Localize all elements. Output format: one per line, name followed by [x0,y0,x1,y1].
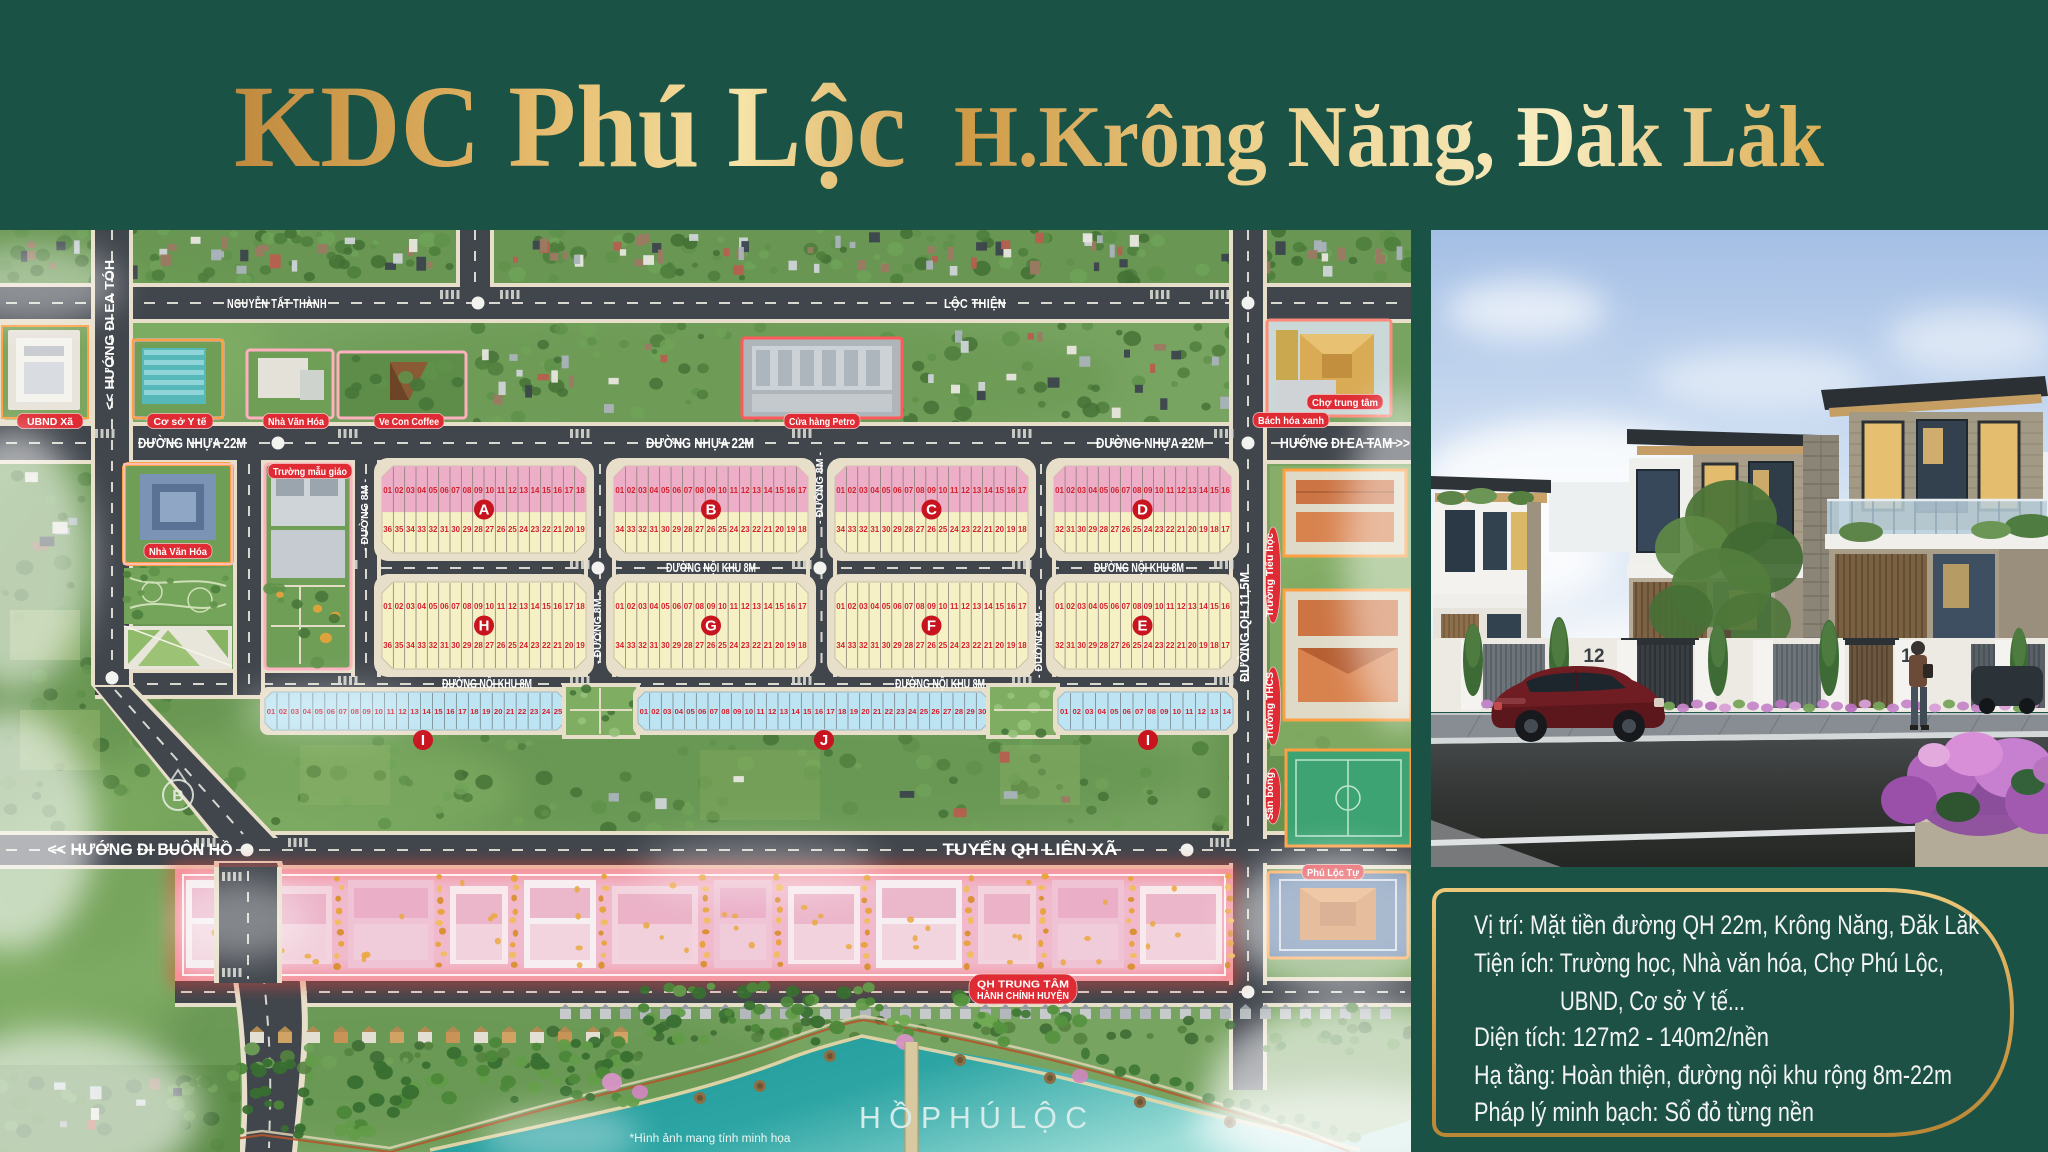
svg-text:LỘC THIỆN: LỘC THIỆN [944,296,1006,311]
svg-text:01: 01 [836,486,845,495]
svg-text:19: 19 [482,707,490,716]
svg-text:13: 13 [780,707,788,716]
svg-text:03: 03 [406,602,415,611]
svg-text:20: 20 [494,707,502,716]
svg-text:14: 14 [764,486,773,495]
svg-text:24: 24 [519,525,528,534]
svg-text:06: 06 [440,602,449,611]
svg-text:27: 27 [695,641,704,650]
svg-text:02: 02 [395,602,404,611]
svg-text:02: 02 [1066,602,1075,611]
svg-text:25: 25 [938,525,947,534]
svg-text:B: B [172,788,184,805]
svg-text:15: 15 [1210,602,1219,611]
svg-text:QH TRUNG TÂM: QH TRUNG TÂM [977,978,1069,991]
svg-text:29: 29 [966,707,974,716]
svg-text:Ve Con Coffee: Ve Con Coffee [379,416,439,428]
svg-text:16: 16 [553,486,562,495]
svg-text:07: 07 [904,486,913,495]
svg-text:22: 22 [973,641,982,650]
svg-text:23: 23 [961,525,970,534]
svg-text:32: 32 [638,525,647,534]
svg-text:33: 33 [848,525,857,534]
svg-text:08: 08 [695,602,704,611]
svg-text:KDC Phú Lộc: KDC Phú Lộc [234,61,906,192]
svg-text:HÀNH CHÍNH HUYỆN: HÀNH CHÍNH HUYỆN [977,989,1069,1002]
svg-text:22: 22 [885,707,893,716]
svg-text:Bách hóa xanh: Bách hóa xanh [1258,415,1324,427]
svg-text:31: 31 [870,641,879,650]
svg-text:15: 15 [1210,486,1219,495]
svg-text:17: 17 [565,486,574,495]
svg-text:15: 15 [995,602,1004,611]
svg-text:02: 02 [1073,707,1081,716]
svg-text:04: 04 [675,707,684,716]
svg-text:Tiện ích: Trường học, Nhà văn: Tiện ích: Trường học, Nhà văn hóa, Chợ P… [1474,948,1944,978]
svg-text:35: 35 [395,525,404,534]
svg-text:23: 23 [741,525,750,534]
svg-text:04: 04 [650,602,659,611]
svg-text:25: 25 [1133,641,1142,650]
svg-text:24: 24 [729,641,738,650]
svg-text:F: F [927,618,936,635]
svg-text:Trường mẫu giáo: Trường mẫu giáo [273,465,347,478]
svg-text:01: 01 [615,486,624,495]
svg-text:TUYẾN QH LIÊN XÃ: TUYẾN QH LIÊN XÃ [943,839,1118,859]
svg-text:J: J [820,732,828,749]
svg-text:05: 05 [882,486,891,495]
svg-text:29: 29 [672,525,681,534]
svg-text:34: 34 [615,641,624,650]
svg-text:06: 06 [1110,486,1119,495]
svg-text:03: 03 [1077,486,1086,495]
svg-text:11: 11 [1185,707,1194,716]
svg-text:04: 04 [870,486,879,495]
svg-text:30: 30 [882,525,891,534]
svg-text:10: 10 [1173,707,1181,716]
svg-text:09: 09 [1160,707,1168,716]
svg-text:07: 07 [904,602,913,611]
svg-text:18: 18 [1018,525,1027,534]
svg-text:22: 22 [752,525,761,534]
svg-text:02: 02 [627,486,636,495]
svg-text:23: 23 [741,641,750,650]
svg-text:26: 26 [1122,641,1131,650]
svg-text:C: C [926,502,937,519]
svg-text:ĐƯỜNG NỘI KHU 8M: ĐƯỜNG NỘI KHU 8M [1094,560,1184,575]
svg-text:30: 30 [451,525,460,534]
svg-text:07: 07 [1122,486,1131,495]
svg-text:18: 18 [838,707,846,716]
svg-text:04: 04 [870,602,879,611]
svg-text:Chợ trung tâm: Chợ trung tâm [1312,397,1378,409]
svg-text:26: 26 [931,707,939,716]
svg-text:04: 04 [1088,486,1097,495]
svg-text:31: 31 [870,525,879,534]
svg-text:14: 14 [984,602,993,611]
svg-text:29: 29 [463,525,472,534]
svg-text:03: 03 [859,486,868,495]
svg-text:28: 28 [1099,641,1108,650]
svg-text:29: 29 [893,525,902,534]
svg-text:07: 07 [1135,707,1143,716]
svg-text:17: 17 [1018,602,1027,611]
svg-text:Nhà Văn Hóa: Nhà Văn Hóa [268,416,324,428]
svg-text:21: 21 [984,641,993,650]
svg-text:25: 25 [718,525,727,534]
svg-text:08: 08 [463,602,472,611]
svg-text:13: 13 [973,486,982,495]
svg-text:25: 25 [554,707,563,716]
svg-text:09: 09 [474,602,483,611]
svg-text:06: 06 [698,707,706,716]
svg-text:11: 11 [730,486,739,495]
svg-text:10: 10 [938,486,947,495]
svg-text:13: 13 [752,486,761,495]
svg-text:06: 06 [893,602,902,611]
svg-text:01: 01 [836,602,845,611]
svg-text:10: 10 [745,707,753,716]
svg-text:NGUYỄN TẤT THÀNH: NGUYỄN TẤT THÀNH [227,296,327,311]
svg-text:31: 31 [650,641,659,650]
svg-text:16: 16 [1221,486,1230,495]
svg-text:06: 06 [893,486,902,495]
svg-text:21: 21 [1177,525,1186,534]
svg-text:28: 28 [904,525,913,534]
svg-text:17: 17 [798,486,807,495]
svg-text:23: 23 [530,707,538,716]
svg-text:19: 19 [786,525,795,534]
svg-text:36: 36 [383,525,392,534]
svg-text:12: 12 [741,602,750,611]
svg-text:12: 12 [1583,646,1604,667]
svg-text:32: 32 [859,641,868,650]
svg-text:12: 12 [741,486,750,495]
svg-text:27: 27 [1110,641,1119,650]
svg-text:32: 32 [638,641,647,650]
svg-text:01: 01 [383,602,392,611]
svg-text:07: 07 [710,707,718,716]
svg-text:17: 17 [798,602,807,611]
svg-text:02: 02 [627,602,636,611]
svg-text:05: 05 [661,602,670,611]
svg-text:02: 02 [395,486,404,495]
svg-text:12: 12 [768,707,776,716]
svg-text:14: 14 [531,486,540,495]
svg-text:ĐƯỜNG NỘI KHU 8M: ĐƯỜNG NỘI KHU 8M [666,560,756,575]
svg-text:09: 09 [707,486,716,495]
svg-text:E: E [1137,618,1147,635]
svg-text:32: 32 [859,525,868,534]
svg-text:24: 24 [729,525,738,534]
svg-text:29: 29 [463,641,472,650]
svg-text:19: 19 [786,641,795,650]
svg-text:36: 36 [383,641,392,650]
svg-text:25: 25 [508,525,517,534]
svg-text:07: 07 [451,602,460,611]
svg-text:01: 01 [1055,486,1064,495]
svg-text:16: 16 [815,707,823,716]
svg-text:34: 34 [836,641,845,650]
svg-text:08: 08 [1148,707,1156,716]
svg-text:20: 20 [565,641,574,650]
svg-text:12: 12 [961,486,970,495]
svg-text:03: 03 [638,486,647,495]
svg-text:- ĐƯỜNG 8M -: - ĐƯỜNG 8M - [591,592,604,664]
svg-text:24: 24 [1144,525,1153,534]
svg-text:12: 12 [1177,486,1186,495]
svg-text:32: 32 [1055,525,1064,534]
svg-text:27: 27 [695,525,704,534]
svg-text:30: 30 [882,641,891,650]
svg-text:30: 30 [661,641,670,650]
svg-text:19: 19 [1007,525,1016,534]
svg-text:21: 21 [984,525,993,534]
svg-text:24: 24 [1144,641,1153,650]
svg-text:10: 10 [718,486,727,495]
svg-text:Cơ sở Y tế: Cơ sở Y tế [153,416,206,428]
svg-text:11: 11 [950,602,959,611]
svg-text:26: 26 [707,641,716,650]
svg-text:21: 21 [764,641,773,650]
svg-text:19: 19 [1199,525,1208,534]
svg-text:10: 10 [938,602,947,611]
svg-text:28: 28 [684,641,693,650]
svg-text:- ĐƯỜNG 8M -: - ĐƯỜNG 8M - [813,452,826,524]
svg-text:31: 31 [1066,525,1075,534]
svg-text:03: 03 [1085,707,1093,716]
svg-text:25: 25 [1133,525,1142,534]
svg-text:29: 29 [893,641,902,650]
svg-text:ĐƯỜNG NHỰA 22M: ĐƯỜNG NHỰA 22M [646,434,754,452]
svg-text:13: 13 [1188,486,1197,495]
svg-text:05: 05 [429,486,438,495]
svg-text:03: 03 [1077,602,1086,611]
svg-text:08: 08 [695,486,704,495]
svg-text:04: 04 [650,486,659,495]
svg-text:09: 09 [1144,602,1153,611]
svg-text:I: I [1146,732,1150,749]
svg-text:ĐƯỜNG QH 11,5M: ĐƯỜNG QH 11,5M [1237,572,1252,682]
svg-text:24: 24 [950,525,959,534]
svg-text:26: 26 [497,525,506,534]
svg-text:ĐƯỜNG NỘI KHU 8M: ĐƯỜNG NỘI KHU 8M [895,676,985,691]
svg-text:*Hình ảnh mang tính minh họa: *Hình ảnh mang tính minh họa [630,1133,792,1145]
svg-text:Trường THCS: Trường THCS [1265,672,1276,740]
svg-text:34: 34 [406,525,415,534]
svg-text:15: 15 [775,602,784,611]
svg-text:14: 14 [422,707,431,716]
svg-text:04: 04 [1088,602,1097,611]
svg-text:30: 30 [661,525,670,534]
svg-text:18: 18 [1210,641,1219,650]
svg-text:28: 28 [955,707,963,716]
svg-text:ĐƯỜNG NỘI KHU 8M: ĐƯỜNG NỘI KHU 8M [442,676,532,691]
svg-text:24: 24 [908,707,917,716]
svg-text:23: 23 [531,525,540,534]
svg-text:18: 18 [1018,641,1027,650]
svg-text:10: 10 [1155,486,1164,495]
svg-text:15: 15 [995,486,1004,495]
svg-text:UBND, Cơ sở Y tế...: UBND, Cơ sở Y tế... [1560,986,1745,1016]
svg-text:17: 17 [1221,525,1230,534]
svg-text:17: 17 [565,602,574,611]
svg-text:28: 28 [904,641,913,650]
svg-text:11: 11 [497,486,506,495]
svg-text:11: 11 [950,486,959,495]
svg-text:21: 21 [764,525,773,534]
svg-text:25: 25 [508,641,517,650]
svg-text:27: 27 [1110,525,1119,534]
svg-text:31: 31 [1066,641,1075,650]
svg-text:19: 19 [1007,641,1016,650]
svg-text:16: 16 [1221,602,1230,611]
svg-text:27: 27 [916,525,925,534]
svg-text:27: 27 [916,641,925,650]
svg-text:08: 08 [916,602,925,611]
svg-text:21: 21 [553,641,562,650]
svg-text:08: 08 [1133,486,1142,495]
svg-text:17: 17 [1221,641,1230,650]
svg-text:14: 14 [984,486,993,495]
svg-text:14: 14 [1199,486,1208,495]
svg-text:14: 14 [1223,707,1232,716]
svg-text:33: 33 [417,525,426,534]
svg-text:26: 26 [927,525,936,534]
svg-text:Hạ tầng: Hoàn thiện, đường nội: Hạ tầng: Hoàn thiện, đường nội khu rộng … [1474,1060,1952,1090]
svg-text:16: 16 [446,707,454,716]
svg-text:22: 22 [518,707,526,716]
svg-text:- ĐƯỜNG 8M -: - ĐƯỜNG 8M - [1032,606,1045,678]
svg-text:03: 03 [638,602,647,611]
svg-text:11: 11 [497,602,506,611]
svg-text:12: 12 [1198,707,1206,716]
svg-text:12: 12 [1177,602,1186,611]
svg-text:20: 20 [1188,641,1197,650]
svg-text:04: 04 [417,602,426,611]
svg-text:03: 03 [406,486,415,495]
svg-text:26: 26 [707,525,716,534]
svg-text:08: 08 [463,486,472,495]
svg-text:23: 23 [1155,641,1164,650]
svg-text:09: 09 [707,602,716,611]
svg-text:06: 06 [440,486,449,495]
svg-text:30: 30 [451,641,460,650]
svg-text:13: 13 [752,602,761,611]
svg-text:25: 25 [938,641,947,650]
svg-text:23: 23 [961,641,970,650]
svg-text:20: 20 [565,525,574,534]
svg-text:22: 22 [973,525,982,534]
svg-text:03: 03 [663,707,671,716]
svg-text:25: 25 [718,641,727,650]
svg-text:19: 19 [850,707,858,716]
svg-text:01: 01 [1055,602,1064,611]
svg-text:A: A [479,502,490,519]
svg-text:16: 16 [786,486,795,495]
svg-text:18: 18 [576,602,585,611]
svg-text:13: 13 [519,486,528,495]
svg-text:11: 11 [1166,486,1175,495]
svg-text:17: 17 [458,707,466,716]
svg-text:14: 14 [531,602,540,611]
svg-text:10: 10 [485,486,494,495]
svg-text:19: 19 [576,525,585,534]
svg-text:17: 17 [826,707,834,716]
svg-text:15: 15 [434,707,443,716]
svg-text:06: 06 [1123,707,1131,716]
svg-text:32: 32 [1055,641,1064,650]
svg-text:07: 07 [684,602,693,611]
svg-text:10: 10 [718,602,727,611]
svg-text:21: 21 [873,707,882,716]
svg-text:07: 07 [684,486,693,495]
svg-text:22: 22 [752,641,761,650]
svg-text:03: 03 [859,602,868,611]
svg-text:18: 18 [576,486,585,495]
svg-text:22: 22 [542,525,551,534]
svg-text:24: 24 [519,641,528,650]
svg-text:01: 01 [383,486,392,495]
svg-text:28: 28 [474,641,483,650]
svg-text:35: 35 [395,641,404,650]
svg-text:12: 12 [508,486,517,495]
svg-text:15: 15 [803,707,812,716]
svg-text:09: 09 [474,486,483,495]
svg-text:01: 01 [640,707,649,716]
svg-text:G: G [705,618,717,635]
svg-text:29: 29 [1088,641,1097,650]
svg-text:04: 04 [1098,707,1107,716]
svg-text:15: 15 [542,602,551,611]
svg-text:27: 27 [943,707,951,716]
svg-text:30: 30 [978,707,986,716]
svg-text:09: 09 [1144,486,1153,495]
svg-text:20: 20 [995,641,1004,650]
svg-text:05: 05 [686,707,695,716]
svg-text:25: 25 [920,707,929,716]
svg-text:31: 31 [650,525,659,534]
svg-text:15: 15 [542,486,551,495]
svg-text:Vị trí: Mặt tiền đường QH 22m,: Vị trí: Mặt tiền đường QH 22m, Krông Năn… [1474,910,1979,940]
svg-text:12: 12 [961,602,970,611]
svg-text:15: 15 [775,486,784,495]
svg-text:27: 27 [485,641,494,650]
svg-text:18: 18 [798,525,807,534]
svg-text:Nhà Văn Hóa: Nhà Văn Hóa [149,546,207,558]
svg-text:29: 29 [672,641,681,650]
svg-text:33: 33 [627,641,636,650]
svg-text:D: D [1137,502,1148,519]
svg-text:11: 11 [1166,602,1175,611]
svg-text:22: 22 [1166,641,1175,650]
svg-text:18: 18 [1210,525,1219,534]
svg-text:20: 20 [1188,525,1197,534]
svg-text:02: 02 [1066,486,1075,495]
svg-text:06: 06 [672,486,681,495]
svg-text:20: 20 [995,525,1004,534]
svg-text:06: 06 [1110,602,1119,611]
svg-text:13: 13 [1210,707,1218,716]
svg-text:05: 05 [882,602,891,611]
svg-text:19: 19 [576,641,585,650]
svg-text:34: 34 [615,525,624,534]
svg-text:18: 18 [798,641,807,650]
svg-text:Diện tích: 127m2 - 140m2/nền: Diện tích: 127m2 - 140m2/nền [1474,1022,1769,1052]
svg-text:33: 33 [417,641,426,650]
svg-text:ĐƯỜNG NHỰA 22M: ĐƯỜNG NHỰA 22M [138,434,246,452]
svg-text:34: 34 [836,525,845,534]
